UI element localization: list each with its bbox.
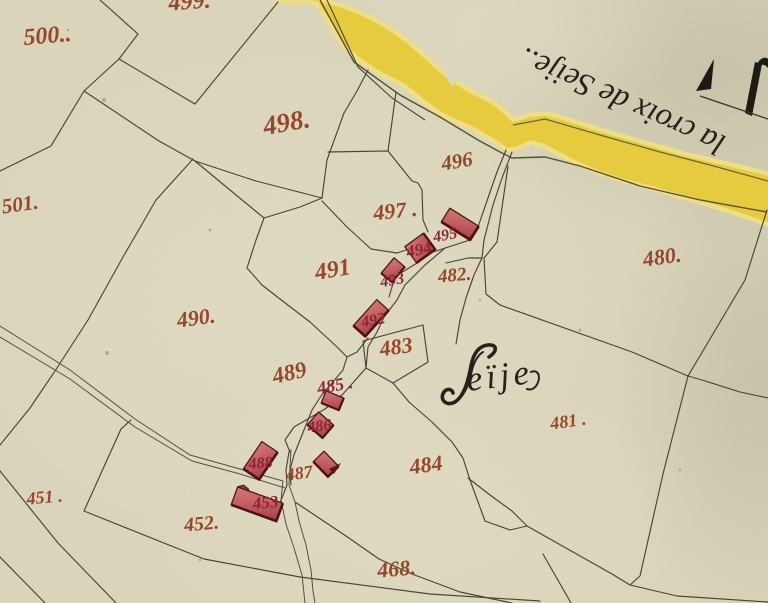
svg-text:500..: 500.. xyxy=(22,21,72,51)
svg-text:482.: 482. xyxy=(436,264,472,288)
svg-text:468.: 468. xyxy=(375,554,417,582)
svg-text:eïje: eïje xyxy=(464,352,535,399)
svg-text:497 .: 497 . xyxy=(371,196,418,226)
svg-text:483: 483 xyxy=(377,332,414,361)
svg-text:496: 496 xyxy=(438,147,474,176)
svg-text:486: 486 xyxy=(305,416,332,436)
svg-text:488: 488 xyxy=(247,454,273,473)
svg-text:451 .: 451 . xyxy=(25,485,64,508)
svg-text:487: 487 xyxy=(283,461,315,485)
svg-text:453: 453 xyxy=(251,492,280,513)
svg-text:501.: 501. xyxy=(0,190,40,219)
svg-text:452.: 452. xyxy=(182,512,220,537)
svg-text:484: 484 xyxy=(407,450,444,479)
